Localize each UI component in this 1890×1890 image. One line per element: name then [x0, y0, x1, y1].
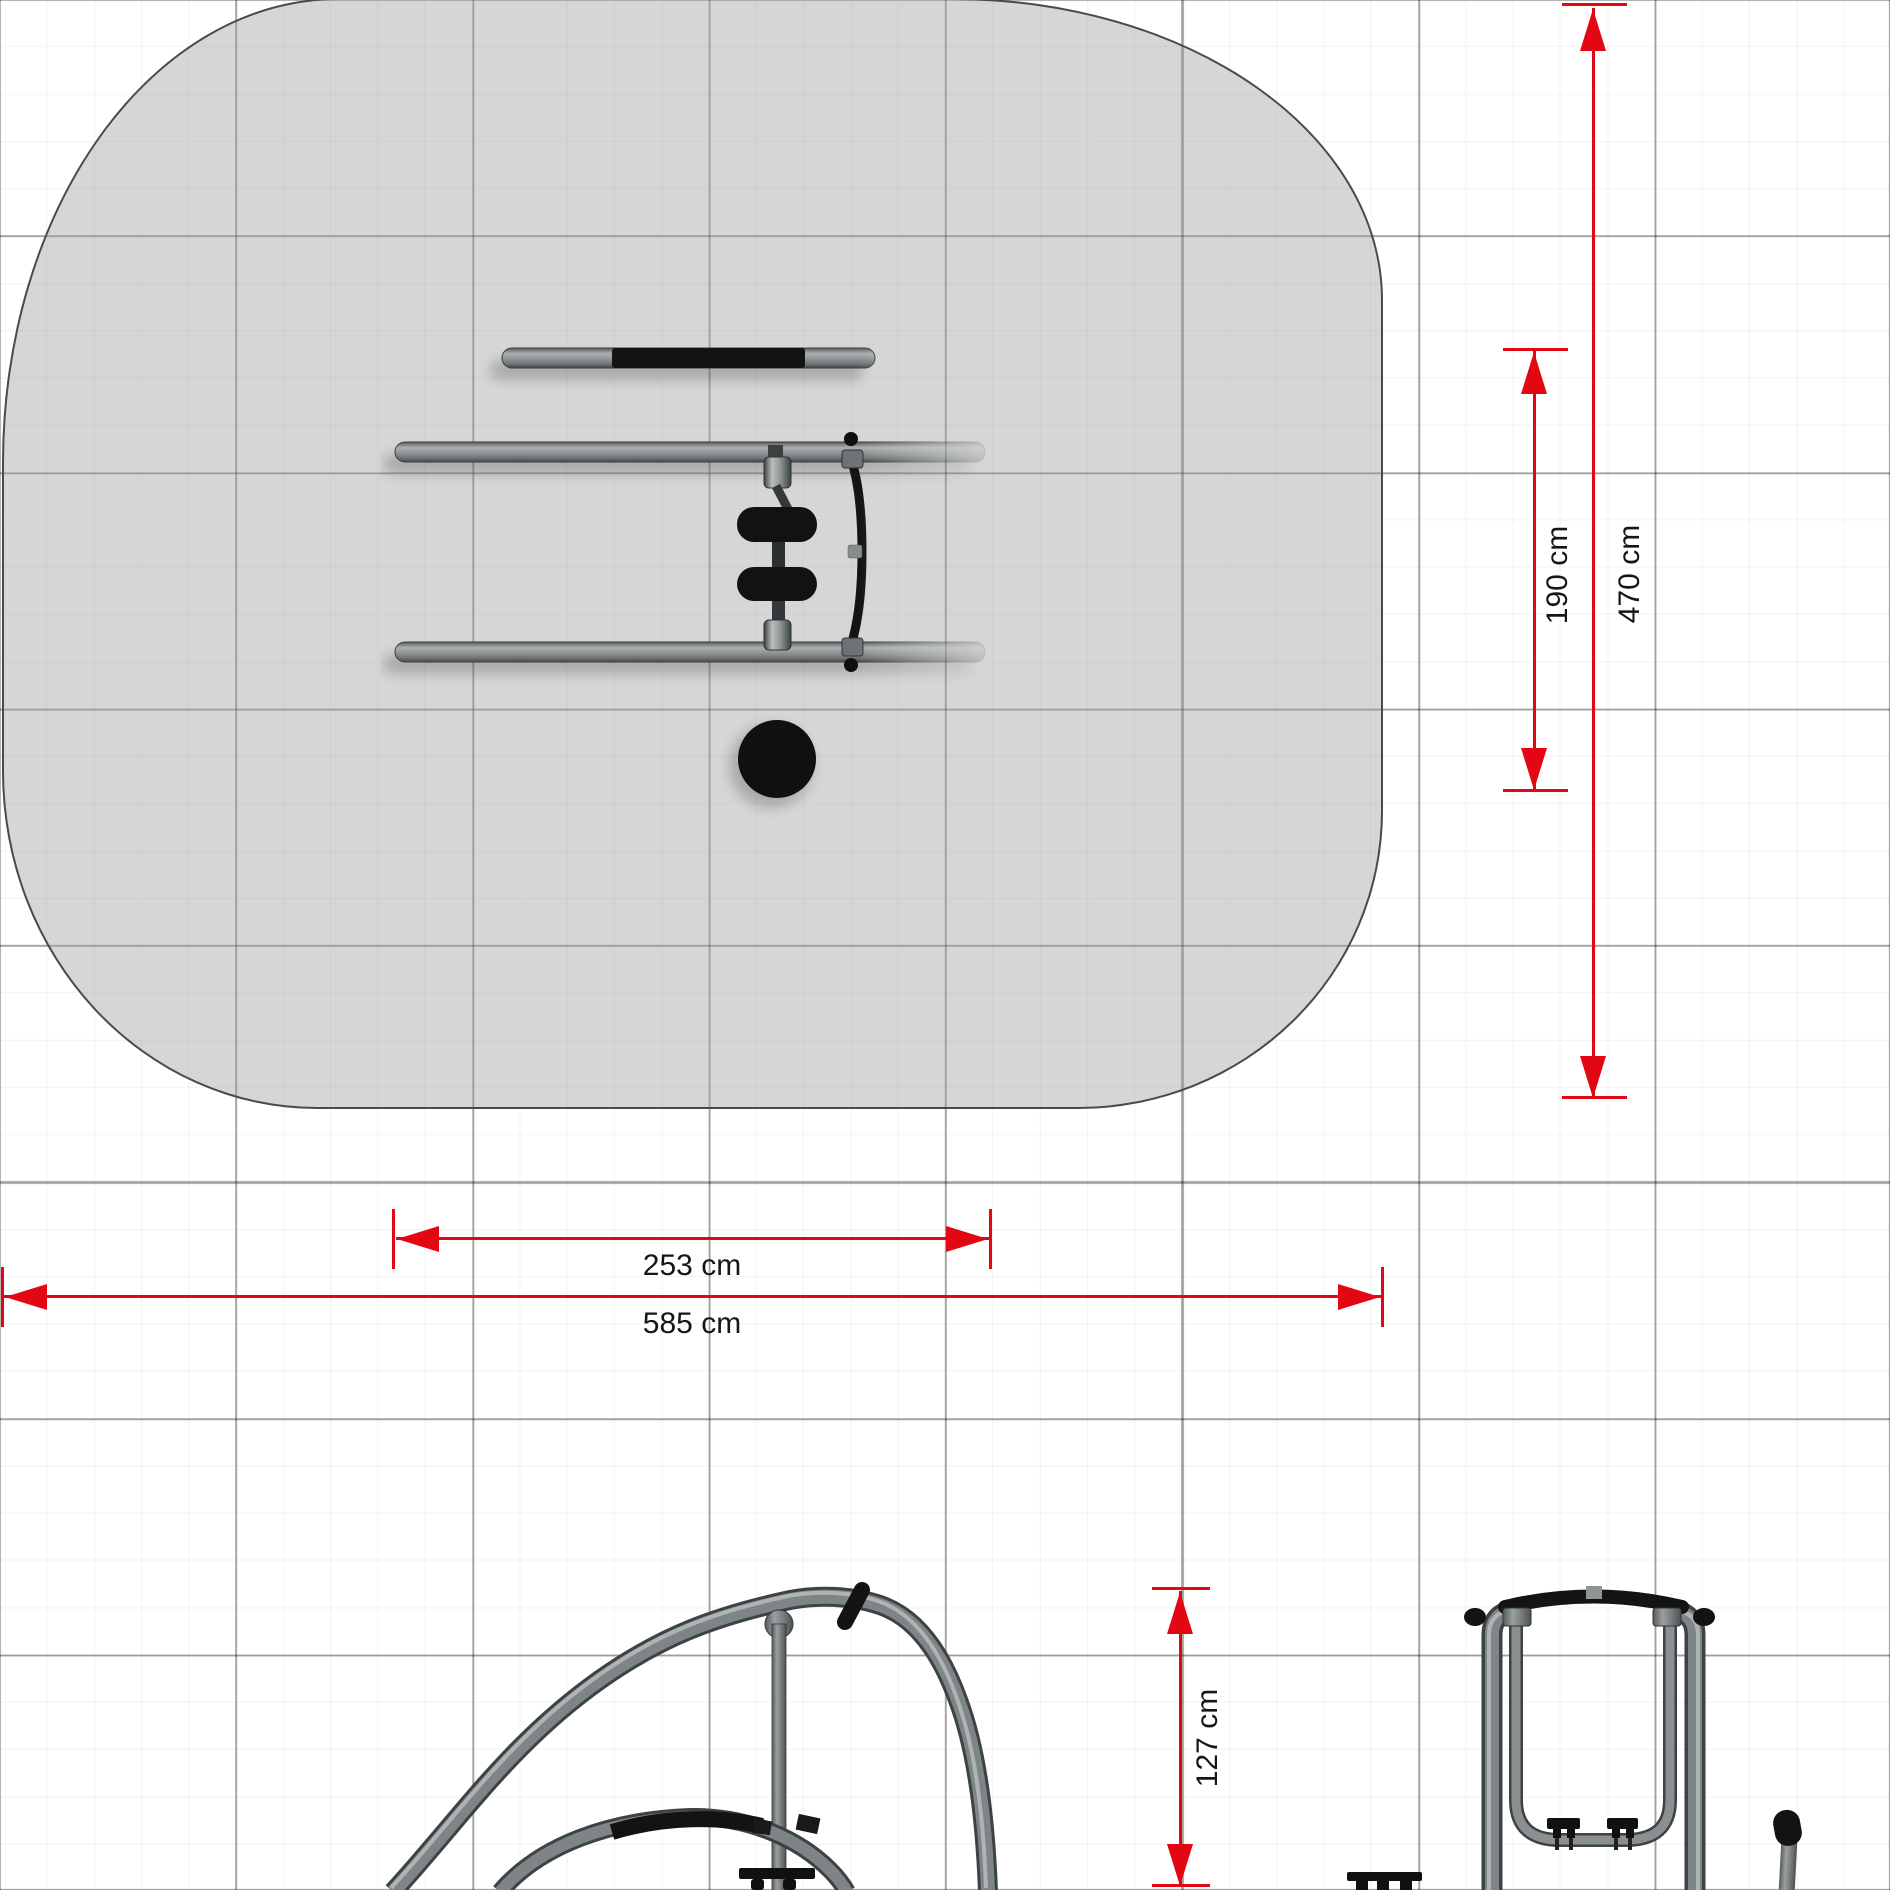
- drawing-sheet-grid: 190 cm 470 cm 253 cm 585 cm 127 cm: [0, 0, 1890, 1890]
- plan-joint-nub-bottom: [844, 658, 858, 672]
- plan-tee-joint-upper: [842, 450, 863, 468]
- plan-seat-disc: [738, 720, 816, 798]
- dim-arrow-left: [397, 1226, 439, 1252]
- dim-label-equipment-depth: 190 cm: [1541, 526, 1575, 624]
- elevation-side-view: [0, 1280, 1010, 1890]
- dim-arrow-up: [1521, 352, 1547, 394]
- dim-label-equipment-height: 127 cm: [1191, 1689, 1225, 1787]
- side-arm-clamp-right: [796, 1814, 821, 1834]
- dim-line: [1592, 8, 1595, 1098]
- plan-pedal-rear: [737, 567, 817, 601]
- dim-arrow-left: [5, 1284, 47, 1310]
- plan-handlebar-grip: [612, 348, 805, 368]
- front-handlebar-clamp-left: [1503, 1608, 1531, 1626]
- dim-tick: [1381, 1267, 1384, 1327]
- plan-crank-cylinder-top: [764, 457, 791, 488]
- plan-shadows: [383, 360, 973, 808]
- dim-line: [4, 1295, 1381, 1298]
- dim-arrow-up: [1167, 1592, 1193, 1634]
- side-arm-clamp-left: [752, 1819, 772, 1835]
- front-handlebar-center-joint: [1586, 1586, 1602, 1599]
- plan-tee-joint-lower: [842, 638, 863, 656]
- dim-arrow-right: [1338, 1284, 1380, 1310]
- dim-line: [396, 1237, 989, 1240]
- dim-arrow-right: [946, 1226, 988, 1252]
- dim-label-zone-depth: 470 cm: [1613, 525, 1647, 623]
- dim-tick: [1562, 3, 1627, 6]
- dim-tick: [989, 1209, 992, 1269]
- dim-tick: [1503, 348, 1568, 351]
- front-pendulum-u-tube: [1516, 1610, 1670, 1840]
- dim-label-equipment-width: 253 cm: [643, 1249, 741, 1283]
- dim-line: [1179, 1591, 1182, 1886]
- plan-view-equipment: [380, 320, 1040, 820]
- plan-pedal-front: [737, 507, 817, 542]
- plan-backrest-sleeve: [848, 545, 862, 558]
- dim-tick: [392, 1209, 395, 1269]
- dim-arrow-up: [1580, 9, 1606, 51]
- dim-tick: [1152, 1587, 1210, 1590]
- adjacent-equipment-partial: [1771, 1808, 1804, 1890]
- dim-tick: [1, 1267, 4, 1327]
- dim-arrow-down: [1580, 1056, 1606, 1098]
- front-handlebar-clamp-right: [1653, 1608, 1681, 1626]
- plan-crank-link-mid: [772, 542, 785, 568]
- dim-arrow-down: [1167, 1844, 1193, 1886]
- side-pendulum-post: [772, 1624, 786, 1890]
- side-main-arch: [391, 1593, 988, 1890]
- front-end-cap-left: [1464, 1608, 1486, 1626]
- elevation-front-view: [1420, 1560, 1890, 1890]
- elevation-cropped-pedal: [1340, 1865, 1435, 1890]
- dim-label-zone-width: 585 cm: [643, 1307, 741, 1341]
- plan-joint-nub-top: [844, 432, 858, 446]
- plan-side-bar-lower: [395, 642, 985, 662]
- plan-crank-cylinder-bottom: [764, 620, 791, 650]
- dim-arrow-down: [1521, 748, 1547, 790]
- dim-line: [1533, 351, 1536, 790]
- front-end-cap-right: [1693, 1608, 1715, 1626]
- plan-side-bar-upper: [395, 442, 985, 462]
